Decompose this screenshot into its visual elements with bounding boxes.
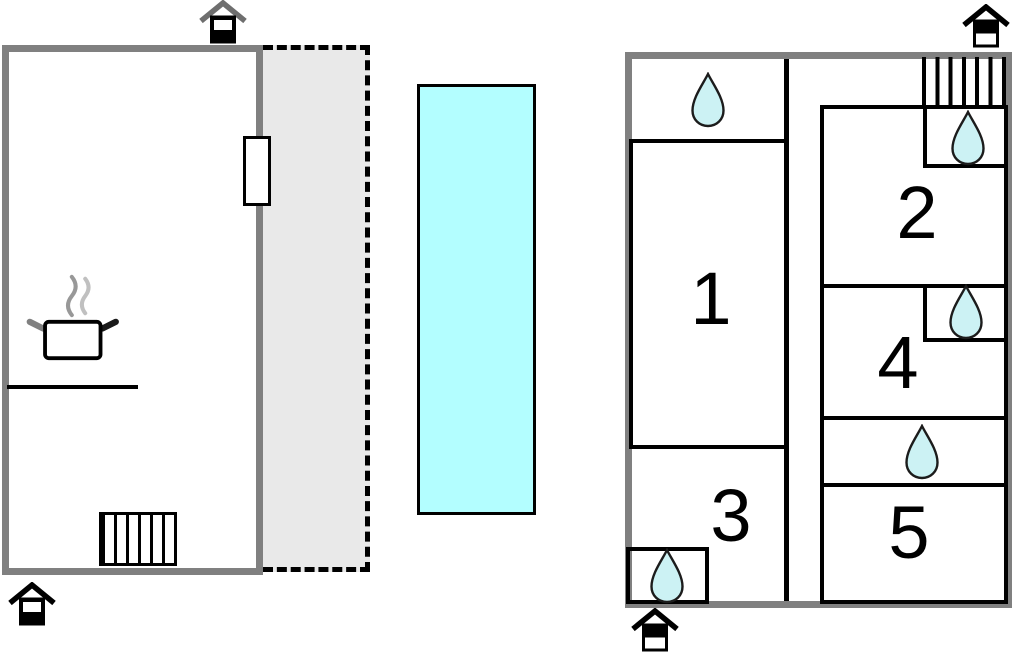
room-5-label: 5 <box>888 496 929 570</box>
water-drop-icon <box>649 548 685 604</box>
entrance-icon-top-left <box>198 0 248 46</box>
room-1-bottom-wall <box>629 445 789 449</box>
water-drop-icon <box>904 424 940 480</box>
door <box>243 136 271 206</box>
entrance-icon-top-right <box>961 4 1011 50</box>
room-1-left-wall <box>629 139 633 449</box>
entrance-icon-bottom-right <box>630 608 680 652</box>
interior-wall-top-room <box>632 139 789 143</box>
kitchen-counter-line <box>7 385 138 389</box>
cooking-pot-icon <box>24 272 134 364</box>
water-drop-icon <box>950 110 986 166</box>
terrace-area <box>263 45 370 572</box>
room-2-label: 2 <box>896 176 937 250</box>
stairs-icon-left-building <box>99 512 177 566</box>
room-4-label: 4 <box>877 326 918 400</box>
swimming-pool <box>417 84 536 515</box>
room-3-label: 3 <box>710 479 751 553</box>
water-drop-icon <box>690 72 726 128</box>
entrance-icon-bottom-left <box>7 582 57 628</box>
water-drop-icon <box>948 284 984 340</box>
room-1-label: 1 <box>690 262 731 336</box>
stairs-icon-right-building <box>922 57 1006 106</box>
floor-plan: 1 2 3 4 5 <box>0 0 1017 652</box>
